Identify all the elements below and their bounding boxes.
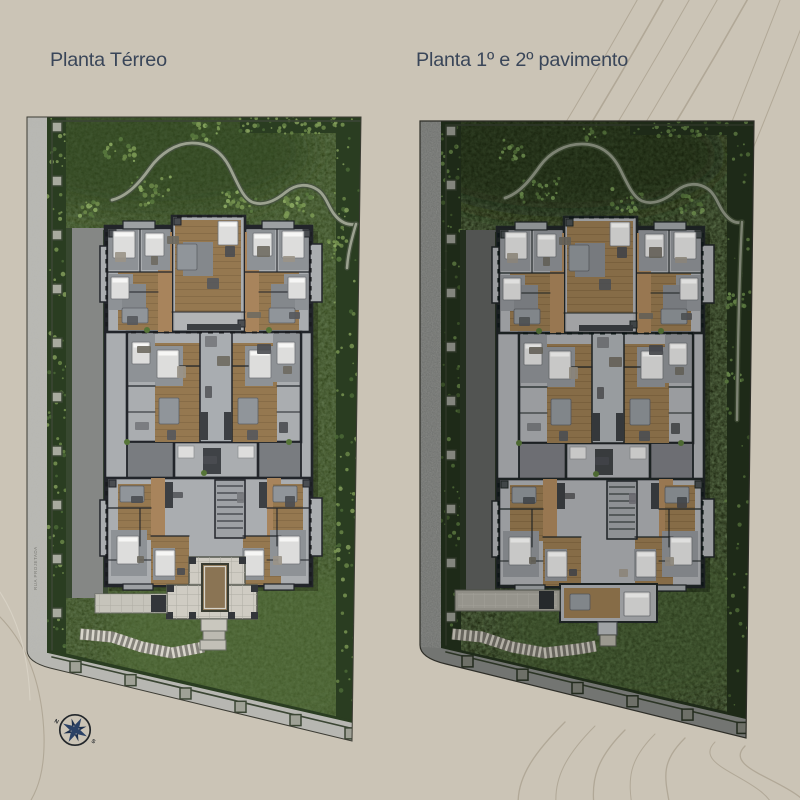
svg-text:Planta 1º e 2º pavimento: Planta 1º e 2º pavimento <box>416 49 628 71</box>
svg-text:RUA PROJETADA: RUA PROJETADA <box>33 546 38 590</box>
svg-text:Planta Térreo: Planta Térreo <box>50 49 167 71</box>
